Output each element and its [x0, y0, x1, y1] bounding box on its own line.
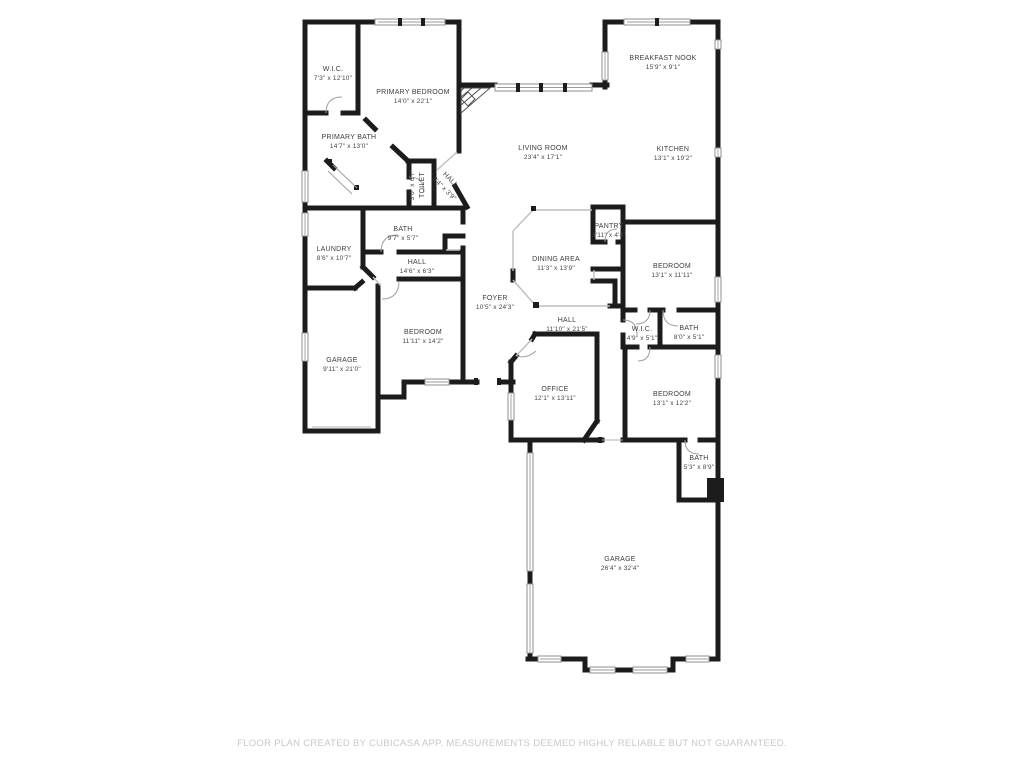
room-label-bedroom-w: BEDROOM [404, 329, 442, 336]
room-label-breakfast-nook: BREAKFAST NOOK [629, 55, 696, 62]
room-dims-wic-primary: 7'3" x 12'10" [314, 75, 353, 82]
walls-right-wing [528, 22, 718, 670]
room-label-office: OFFICE [541, 386, 568, 393]
room-label-hall-main: HALL [408, 259, 427, 266]
room-dims-bath-hall: 9'7" x 5'7" [388, 235, 419, 242]
room-dims-office: 12'1" x 13'11" [534, 395, 576, 402]
room-label-bedroom-ne: BEDROOM [653, 263, 691, 270]
room-dims-hall-center: 11'10" x 21'5" [546, 326, 588, 333]
room-dims-garage-small: 9'11" x 21'0" [323, 366, 361, 373]
room-labels: W.I.C. 7'3" x 12'10" PRIMARY BEDROOM 14'… [314, 55, 715, 572]
floor-plan: W.I.C. 7'3" x 12'10" PRIMARY BEDROOM 14'… [0, 0, 1024, 768]
room-dims-toilet: 3'0" x 6'7" [409, 169, 416, 200]
room-label-wic-primary: W.I.C. [323, 66, 344, 73]
room-dims-living-room: 23'4" x 17'1" [524, 154, 563, 161]
room-dims-primary-bath: 14'7" x 13'0" [330, 143, 369, 150]
room-dims-bath-guest: 8'0" x 5'1" [674, 334, 705, 341]
room-label-living-room: LIVING ROOM [518, 145, 567, 152]
room-label-primary-bedroom: PRIMARY BEDROOM [376, 89, 450, 96]
disclaimer-text: FLOOR PLAN CREATED BY CUBICASA APP. MEAS… [237, 738, 787, 749]
room-dims-bedroom-ne: 13'1" x 11'11" [651, 272, 693, 279]
room-label-wic-guest: W.I.C. [632, 326, 653, 333]
room-dims-garage-large: 26'4" x 32'4" [601, 565, 640, 572]
room-label-laundry: LAUNDRY [316, 246, 351, 253]
room-dims-pantry: 3'11" x 4'4" [592, 232, 626, 239]
room-label-bath-hall: BATH [393, 226, 412, 233]
stairs-icon [461, 88, 490, 113]
room-label-garage-large: GARAGE [604, 556, 636, 563]
room-dims-breakfast-nook: 15'9" x 9'1" [646, 64, 681, 71]
room-label-garage-small: GARAGE [326, 357, 358, 364]
room-label-toilet: TOILET [419, 172, 426, 198]
room-dims-laundry: 8'6" x 10'7" [317, 255, 352, 262]
room-dims-bath-se: 5'3" x 8'9" [684, 464, 715, 471]
room-dims-bedroom-w: 11'11" x 14'2" [402, 338, 444, 345]
room-label-pantry: PANTRY [594, 223, 623, 230]
room-dims-kitchen: 13'1" x 19'2" [654, 155, 693, 162]
room-label-bath-se: BATH [689, 455, 708, 462]
room-label-foyer: FOYER [482, 295, 507, 302]
room-label-bath-guest: BATH [679, 325, 698, 332]
wall-block [707, 478, 724, 502]
room-dims-dining-area: 11'3" x 13'9" [537, 265, 575, 272]
room-label-kitchen: KITCHEN [657, 146, 689, 153]
room-dims-wic-guest: 4'9" x 5'1" [627, 335, 658, 342]
room-dims-foyer: 10'5" x 24'3" [476, 304, 515, 311]
room-dims-primary-bedroom: 14'0" x 22'1" [394, 98, 433, 105]
room-label-dining-area: DINING AREA [532, 256, 580, 263]
room-label-primary-bath: PRIMARY BATH [322, 134, 377, 141]
room-label-bedroom-se: BEDROOM [653, 391, 691, 398]
room-dims-bedroom-se: 13'1" x 12'2" [653, 400, 692, 407]
room-label-hall-center: HALL [558, 317, 577, 324]
room-dims-hall-main: 14'6" x 6'3" [400, 268, 435, 275]
